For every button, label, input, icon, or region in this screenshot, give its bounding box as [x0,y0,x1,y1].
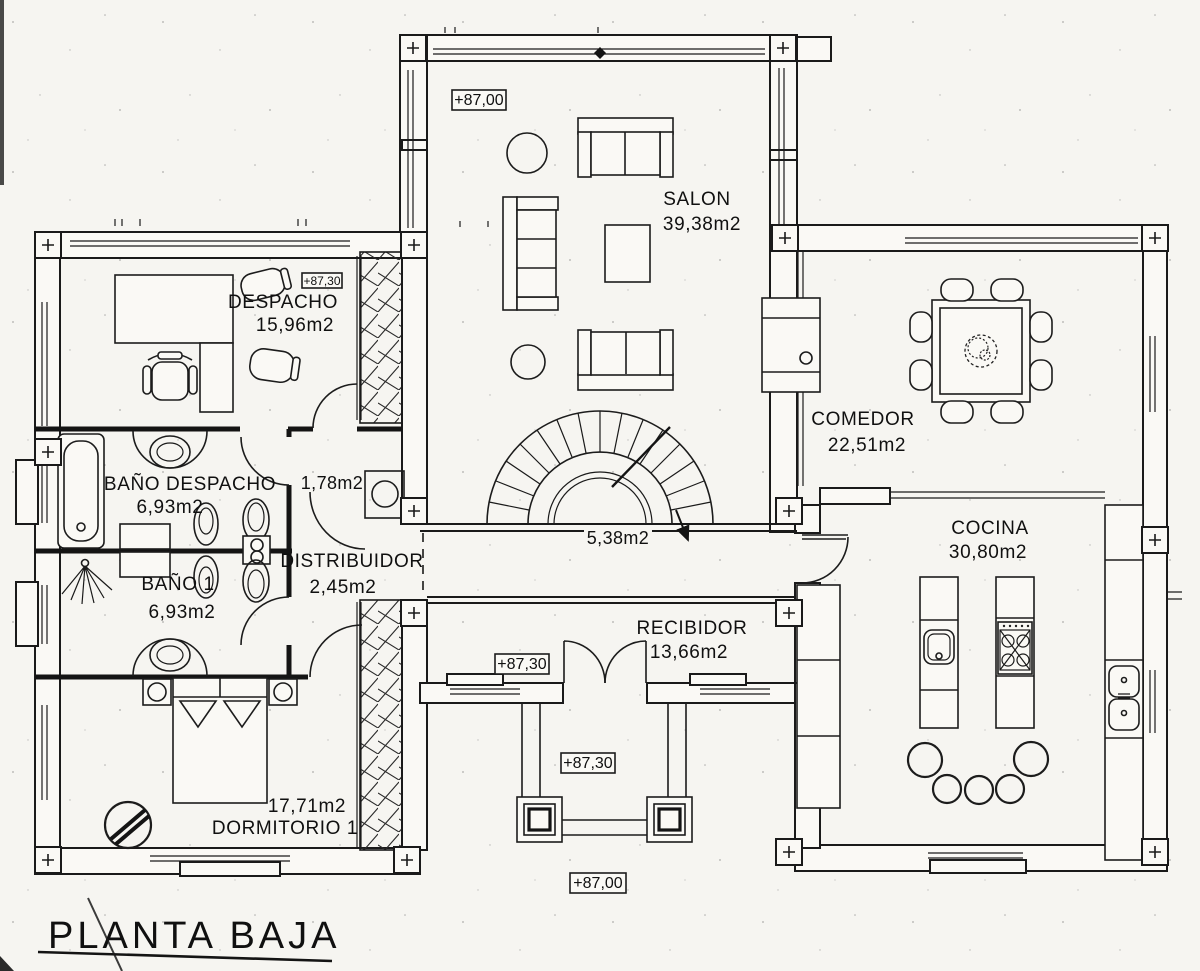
elevation-porche: +87,30 [561,753,615,773]
chair [941,279,973,301]
chair [991,279,1023,301]
chair [991,401,1023,423]
despacho-area-label: 15,96m2 [256,315,334,336]
counter-left [797,585,840,808]
chair [1030,312,1052,342]
fireplace [762,298,820,392]
closet-hatched-upper [357,252,402,423]
sofa-top [578,118,673,177]
desk [115,275,233,343]
elevation-salon: +87,00 [452,90,506,110]
svg-text:+87,30: +87,30 [497,656,546,673]
cabinet [120,524,170,549]
sofa-bottom [578,330,673,390]
comedor-area-label: 22,51m2 [828,435,906,456]
island-sink [920,577,958,728]
sofa-left [503,197,558,310]
recibidor-area-label: 13,66m2 [650,642,728,663]
armario-area-label: 1,78m2 [301,473,363,493]
bano-despacho-area-label: 6,93m2 [137,497,204,518]
bano1-area-label: 6,93m2 [149,602,216,623]
svg-text:+87,00: +87,00 [454,92,503,109]
counter-right [1105,505,1143,860]
dining-table [932,300,1030,402]
coffee-table [605,225,650,282]
distribuidor-name-label: DISTRIBUIDOR [280,551,423,572]
dormitorio-area-label: 17,71m2 [268,796,346,817]
scan-edge-mark [0,0,4,185]
cocina-area-label: 30,80m2 [949,542,1027,563]
svg-text:+87,00: +87,00 [573,875,622,892]
island-stove [996,577,1034,728]
bano1-name-label: BAÑO 1 [141,573,214,595]
elevation-exterior: +87,00 [570,873,626,893]
chair [1030,360,1052,390]
cocina-name-label: COCINA [951,518,1029,539]
salon-name-label: SALON [663,189,730,210]
chair [910,312,932,342]
distribuidor-area-label: 2,45m2 [310,577,377,598]
despacho-name-label: DESPACHO [228,292,338,313]
salon-area-label: 39,38m2 [663,214,741,235]
bano-despacho-name-label: BAÑO DESPACHO [104,473,276,495]
dormitorio-name-label: DORMITORIO 1 [212,818,358,839]
floor-plan-sheet: SALON 39,38m2 DESPACHO 15,96m2 BAÑO DESP… [0,0,1200,971]
chair [941,401,973,423]
elevation-despacho: +87,30 [302,273,342,288]
floor-plan-drawing: SALON 39,38m2 DESPACHO 15,96m2 BAÑO DESP… [0,0,1200,971]
plan-title: PLANTA BAJA [48,915,341,957]
closet-hatched-lower [357,600,402,850]
recibidor-name-label: RECIBIDOR [637,618,748,639]
svg-text:+87,30: +87,30 [563,755,612,772]
escalera-area-label: 5,38m2 [587,528,649,548]
svg-text:+87,30: +87,30 [303,274,340,288]
comedor-name-label: COMEDOR [811,409,914,430]
chair [910,360,932,390]
elevation-entrada: +87,30 [495,654,549,674]
